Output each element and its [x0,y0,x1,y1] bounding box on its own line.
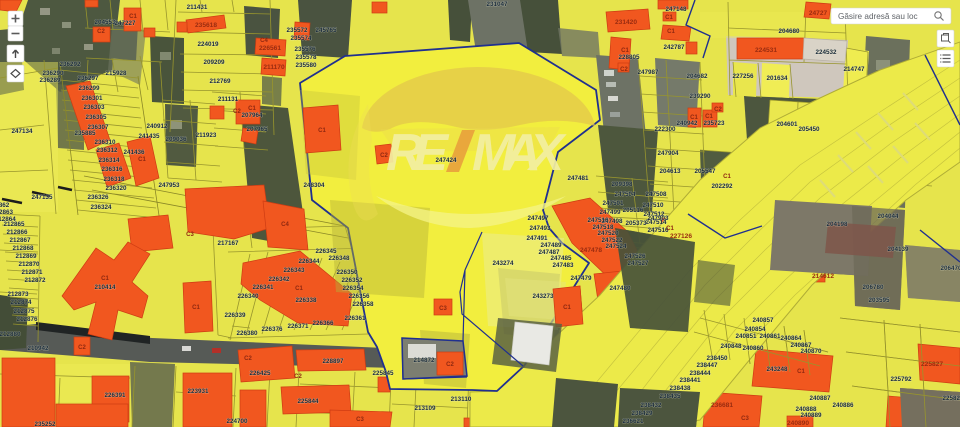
svg-text:247508: 247508 [645,191,667,198]
svg-text:248304: 248304 [303,182,325,189]
svg-text:241436: 241436 [123,149,145,156]
svg-text:242787: 242787 [663,44,685,51]
svg-text:212875: 212875 [13,308,35,315]
svg-text:C3: C3 [439,306,447,312]
svg-text:204553: 204553 [94,19,116,26]
svg-text:RE: RE [386,124,449,182]
svg-text:226339: 226339 [224,312,246,319]
svg-text:247485: 247485 [550,255,572,262]
svg-text:247134: 247134 [11,128,33,135]
svg-text:240890: 240890 [787,420,809,427]
svg-text:211923: 211923 [196,132,217,139]
svg-text:211131: 211131 [218,96,239,103]
svg-text:226352: 226352 [341,277,363,284]
svg-text:C3: C3 [356,417,364,423]
svg-text:238429: 238429 [631,410,653,417]
svg-text:224019: 224019 [197,41,219,48]
svg-text:C2: C2 [714,107,722,113]
svg-text:240857: 240857 [752,317,774,324]
svg-text:236299: 236299 [78,85,100,92]
svg-text:236305: 236305 [85,114,107,121]
svg-text:204601: 204601 [776,121,798,128]
svg-text:227256: 227256 [732,73,754,80]
svg-text:C1: C1 [667,29,675,35]
svg-text:202292: 202292 [711,183,733,190]
svg-text:236310: 236310 [94,139,116,146]
svg-text:212874: 212874 [10,299,32,306]
svg-text:236320: 236320 [105,185,127,192]
svg-text:240864: 240864 [780,335,802,342]
svg-text:C2: C2 [97,29,105,35]
svg-text:205450: 205450 [798,126,820,133]
svg-text:211431: 211431 [187,4,208,11]
svg-text:236681: 236681 [711,402,733,409]
svg-text:238444: 238444 [689,370,711,377]
svg-text:236318: 236318 [103,176,125,183]
svg-text:C1: C1 [318,128,326,134]
svg-text:205116: 205116 [623,207,644,214]
svg-text:C1: C1 [192,305,200,311]
svg-text:C1: C1 [295,286,303,292]
svg-text:236290: 236290 [42,70,64,77]
svg-text:228805: 228805 [618,54,640,61]
svg-text:247227: 247227 [114,20,136,27]
svg-text:247903: 247903 [647,215,669,222]
svg-text:236312: 236312 [96,147,118,154]
svg-text:235574: 235574 [290,35,312,42]
svg-text:247987: 247987 [637,69,659,76]
svg-text:245765: 245765 [315,27,337,34]
svg-text:235578: 235578 [295,54,317,61]
svg-text:236292: 236292 [59,61,81,68]
svg-text:247480: 247480 [609,285,631,292]
svg-text:C1: C1 [621,48,629,54]
svg-text:236314: 236314 [98,157,120,164]
svg-text:226356: 226356 [348,293,370,300]
svg-text:212869: 212869 [15,253,37,260]
svg-text:204139: 204139 [887,246,909,253]
svg-text:236324: 236324 [90,204,112,211]
svg-text:C4: C4 [260,38,268,44]
svg-text:231420: 231420 [615,19,637,26]
svg-text:236301: 236301 [81,95,103,102]
svg-text:238432: 238432 [640,402,662,409]
svg-text:235885: 235885 [74,130,96,137]
svg-text:212871: 212871 [21,269,43,276]
svg-text:226348: 226348 [328,255,350,262]
svg-text:206780: 206780 [862,284,884,291]
svg-text:225845: 225845 [372,370,394,377]
svg-text:225844: 225844 [297,398,319,405]
svg-text:C1: C1 [690,115,698,121]
svg-text:236303: 236303 [83,104,105,111]
svg-text:204044: 204044 [877,213,899,220]
svg-text:226380: 226380 [236,330,258,337]
svg-text:240942: 240942 [676,120,698,127]
svg-text:C3: C3 [741,416,749,422]
svg-text:C1: C1 [723,174,731,180]
svg-text:247135: 247135 [31,194,53,201]
svg-text:C1: C1 [101,276,109,282]
svg-text:226341: 226341 [252,284,274,291]
svg-text:Găsire adresă sau loc: Găsire adresă sau loc [838,12,918,21]
svg-text:C4: C4 [281,222,289,228]
svg-text:226371: 226371 [287,323,309,330]
svg-text:212868: 212868 [12,245,34,252]
svg-text:C2: C2 [244,356,252,362]
svg-text:243274: 243274 [492,260,514,267]
svg-text:247953: 247953 [158,182,180,189]
svg-text:238450: 238450 [706,355,728,362]
svg-text:MAX: MAX [472,124,567,182]
svg-text:205373: 205373 [625,220,647,227]
svg-text:214872: 214872 [413,357,435,364]
svg-text:212867: 212867 [9,237,31,244]
svg-text:212873: 212873 [7,291,29,298]
svg-text:862: 862 [0,202,10,209]
svg-text:210942: 210942 [27,345,49,352]
svg-text:226361: 226361 [344,315,366,322]
svg-text:215928: 215928 [105,70,127,77]
svg-text:228897: 228897 [322,358,344,365]
svg-text:247516: 247516 [587,217,609,224]
svg-text:205547: 205547 [694,168,716,175]
svg-text:C1: C1 [129,14,137,20]
svg-text:247510: 247510 [642,202,664,209]
svg-text:243248: 243248 [766,366,788,373]
svg-text:243273: 243273 [532,293,554,300]
svg-text:209036: 209036 [165,136,187,143]
svg-text:239290: 239290 [689,93,711,100]
svg-text:240851: 240851 [735,333,757,340]
svg-text:238435: 238435 [659,393,681,400]
svg-text:226340: 226340 [237,293,259,300]
svg-text:213109: 213109 [414,405,436,412]
svg-text:212866: 212866 [6,229,28,236]
svg-text:241435: 241435 [138,133,160,140]
svg-text:236326: 236326 [87,194,109,201]
svg-text:240912: 240912 [146,123,168,130]
svg-text:226344: 226344 [298,258,320,265]
svg-text:212876: 212876 [16,316,38,323]
svg-text:240854: 240854 [744,326,766,333]
svg-text:235576: 235576 [294,46,316,53]
svg-text:240889: 240889 [800,412,822,419]
svg-text:236289: 236289 [39,77,61,84]
svg-text:C2: C2 [380,153,388,159]
svg-text:238441: 238441 [679,377,701,384]
svg-text:247483: 247483 [552,262,574,269]
svg-text:204198: 204198 [826,221,848,228]
svg-text:C2: C2 [294,374,302,380]
svg-text:224531: 224531 [755,47,777,54]
svg-text:226561: 226561 [259,45,281,52]
svg-text:214747: 214747 [843,66,865,73]
svg-text:226343: 226343 [283,267,305,274]
svg-text:2863: 2863 [0,209,13,216]
svg-text:226425: 226425 [249,370,271,377]
svg-text:24727: 24727 [809,10,828,17]
svg-text:203595: 203595 [868,297,890,304]
svg-text:247504: 247504 [614,191,636,198]
svg-text:204613: 204613 [659,168,681,175]
svg-text:212870: 212870 [18,261,40,268]
svg-text:240861: 240861 [759,333,781,340]
svg-text:247904: 247904 [657,150,679,157]
svg-text:226342: 226342 [268,276,290,283]
svg-text:226354: 226354 [342,285,364,292]
svg-text:235618: 235618 [195,22,217,29]
svg-text:247424: 247424 [435,157,457,164]
svg-text:247148: 247148 [665,6,687,13]
svg-text:206470: 206470 [940,265,960,272]
svg-text:236297: 236297 [77,75,99,82]
svg-text:240886: 240886 [832,402,854,409]
svg-text:C2: C2 [620,67,628,73]
svg-text:217167: 217167 [217,240,239,247]
svg-text:207965: 207965 [246,126,268,133]
svg-text:C1: C1 [666,226,674,232]
svg-text:224700: 224700 [226,418,248,425]
svg-text:226376: 226376 [261,326,283,333]
svg-text:226358: 226358 [352,301,374,308]
svg-text:C1: C1 [797,369,805,375]
svg-text:247491: 247491 [526,235,548,242]
svg-text:226338: 226338 [295,297,317,304]
svg-text:212880: 212880 [0,331,21,338]
svg-text:212872: 212872 [24,277,46,284]
svg-text:247499: 247499 [599,209,621,216]
svg-text:247478: 247478 [580,247,602,254]
svg-text:247520: 247520 [597,230,619,237]
svg-text:247481: 247481 [567,175,589,182]
svg-text:225828: 225828 [942,395,960,402]
svg-text:C2: C2 [78,345,86,351]
svg-text:222300: 222300 [654,126,676,133]
svg-text:223931: 223931 [187,388,209,395]
svg-text:247489: 247489 [540,242,562,249]
svg-text:C1: C1 [138,157,146,163]
svg-text:211170: 211170 [263,64,285,71]
svg-text:247526: 247526 [624,253,646,260]
svg-text:240860: 240860 [742,345,764,352]
svg-text:224532: 224532 [815,49,837,56]
svg-text:247479: 247479 [570,275,592,282]
svg-text:207964: 207964 [241,112,263,119]
svg-text:C1: C1 [665,15,673,21]
svg-text:C1: C1 [563,305,571,311]
svg-text:247527: 247527 [627,260,649,267]
svg-text:240870: 240870 [800,348,822,355]
svg-text:247524: 247524 [605,243,627,250]
svg-text:209209: 209209 [203,59,225,66]
svg-text:226350: 226350 [336,269,358,276]
svg-text:238447: 238447 [696,362,718,369]
svg-text:225827: 225827 [921,361,943,368]
svg-text:247493: 247493 [529,225,551,232]
svg-text:235723: 235723 [703,120,725,127]
svg-text:212769: 212769 [209,78,231,85]
svg-text:213110: 213110 [451,396,472,403]
svg-text:201634: 201634 [766,75,788,82]
svg-text:235580: 235580 [295,62,317,69]
svg-text:240848: 240848 [720,343,742,350]
svg-text:209398: 209398 [611,181,633,188]
svg-text:C1: C1 [705,114,713,120]
svg-text:C2: C2 [446,362,454,368]
svg-text:236316: 236316 [101,166,123,173]
svg-text:214612: 214612 [812,273,834,280]
svg-text:238438: 238438 [669,385,691,392]
svg-text:226345: 226345 [315,248,337,255]
svg-text:212865: 212865 [3,221,25,228]
svg-text:247497: 247497 [527,215,549,222]
svg-text:226391: 226391 [104,392,126,399]
svg-text:227126: 227126 [670,233,692,240]
svg-text:204682: 204682 [686,73,708,80]
svg-text:226366: 226366 [312,320,334,327]
svg-text:236621: 236621 [622,418,644,425]
svg-text:231047: 231047 [486,1,508,8]
svg-text:225792: 225792 [890,376,912,383]
svg-text:C3: C3 [186,232,194,238]
svg-text:247501: 247501 [602,200,624,207]
svg-text:235572: 235572 [286,27,308,34]
svg-text:204680: 204680 [778,28,800,35]
svg-text:C2: C2 [233,109,241,115]
svg-text:235252: 235252 [34,421,56,427]
svg-text:240887: 240887 [809,395,831,402]
svg-text:210414: 210414 [94,284,116,291]
